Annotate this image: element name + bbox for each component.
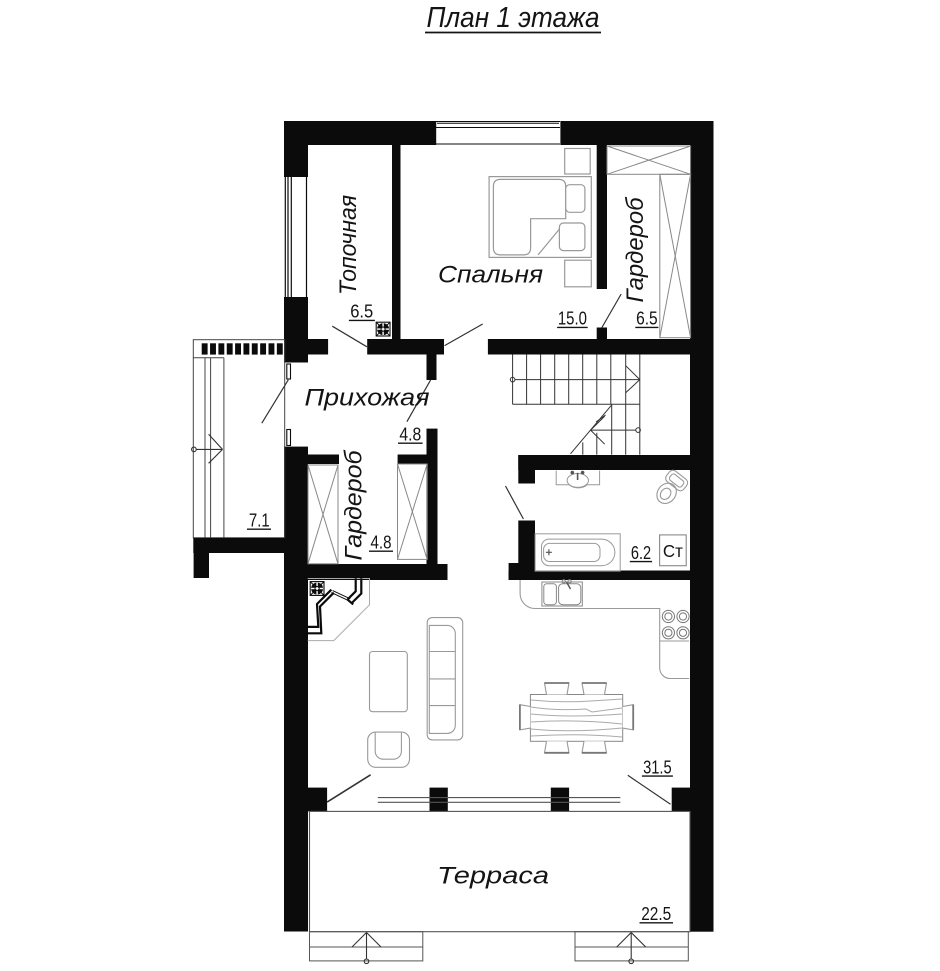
svg-text:4.8: 4.8 (399, 424, 421, 445)
svg-text:Терраса: Терраса (437, 863, 549, 890)
svg-text:Ст: Ст (663, 541, 683, 561)
svg-text:Спальня: Спальня (438, 262, 543, 289)
svg-text:6.2: 6.2 (631, 542, 651, 563)
svg-text:6.5: 6.5 (636, 308, 658, 329)
svg-text:7.1: 7.1 (249, 510, 270, 531)
svg-text:31.5: 31.5 (643, 756, 672, 777)
svg-text:Гардероб: Гардероб (622, 196, 649, 302)
svg-text:Прихожая: Прихожая (305, 384, 430, 411)
svg-text:План 1 этажа: План 1 этажа (427, 2, 600, 34)
svg-text:6.5: 6.5 (350, 301, 373, 322)
svg-text:15.0: 15.0 (558, 308, 587, 329)
svg-text:4.8: 4.8 (371, 532, 392, 553)
svg-text:Гардероб: Гардероб (341, 449, 368, 561)
svg-text:Топочная: Топочная (335, 195, 362, 295)
svg-text:22.5: 22.5 (641, 903, 671, 924)
